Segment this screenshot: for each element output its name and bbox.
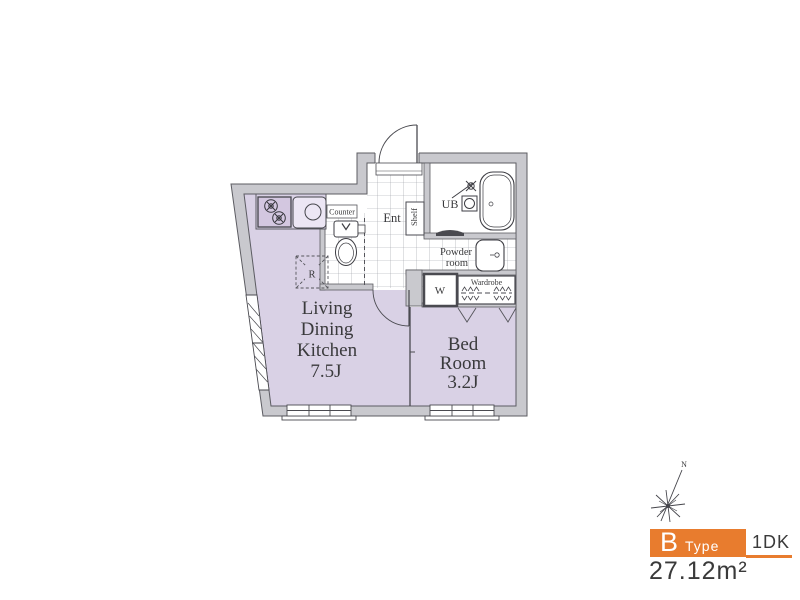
area-label: 27.12m² (649, 557, 748, 586)
entrance-door (376, 125, 422, 175)
type-letter: B (660, 529, 678, 556)
ldk-label-4: 7.5J (310, 361, 341, 382)
wardrobe-label: Wardrobe (471, 278, 503, 287)
type-word: Type (685, 538, 719, 554)
washer-closet: W (424, 274, 457, 306)
washer-closet-label: W (435, 285, 446, 297)
ldk-label-3: Kitchen (297, 340, 358, 361)
counter-label: Counter (329, 208, 355, 217)
kitchen (256, 194, 326, 229)
powder-label-1: Powder (440, 247, 473, 258)
refrigerator-label: R (308, 270, 315, 281)
entrance-opening (375, 152, 419, 164)
bath-stool (462, 196, 477, 211)
bedroom-label-3: 3.2J (447, 372, 478, 393)
ldk-label-2: Dining (301, 319, 354, 340)
shelf-closet: Shelf (406, 202, 424, 235)
bedroom-window (425, 405, 499, 420)
floor-plan-svg: Shelf Ent Counter (0, 0, 800, 600)
ldk-label-1: Living (302, 298, 353, 319)
compass: N (651, 460, 687, 522)
bath-door-step (436, 230, 464, 236)
bedroom-label-2: Room (440, 353, 487, 374)
layout-label: 1DK (752, 532, 790, 553)
ldk-window (282, 405, 356, 420)
type-badge: B Type (650, 529, 746, 557)
north-label: N (681, 460, 687, 469)
unit-bath: UB (436, 172, 514, 236)
shelf-label: Shelf (409, 208, 419, 226)
bathtub (480, 172, 514, 230)
bedroom-label-1: Bed (448, 334, 479, 355)
powder-label-2: room (446, 258, 468, 269)
compass-star (651, 490, 685, 522)
unit-bath-label: UB (442, 197, 459, 211)
washbasin (476, 240, 504, 271)
floor-plan-page: Shelf Ent Counter (0, 0, 800, 600)
entrance-label: Ent (383, 211, 401, 225)
sink (293, 197, 326, 228)
shower-fixture (452, 181, 476, 198)
layout-underline (746, 555, 792, 558)
